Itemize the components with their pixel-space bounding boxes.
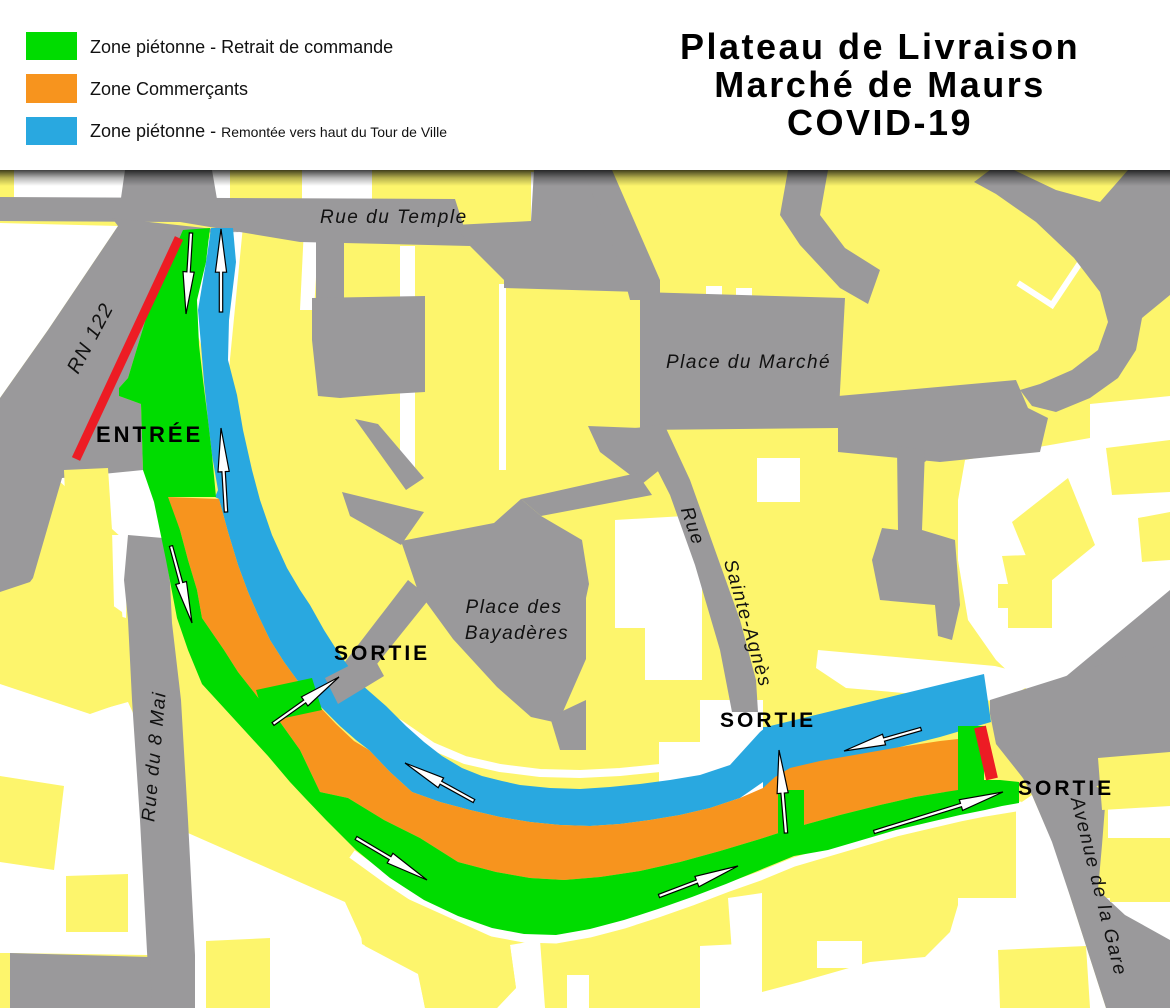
svg-text:Place des: Place des [466, 597, 563, 618]
svg-text:Rue du Temple: Rue du Temple [320, 207, 468, 228]
svg-text:SORTIE: SORTIE [334, 642, 430, 665]
svg-text:ENTRÉE: ENTRÉE [96, 422, 203, 447]
svg-text:SORTIE: SORTIE [720, 709, 816, 732]
svg-text:SORTIE: SORTIE [1018, 777, 1114, 800]
svg-text:Place du Marché: Place du Marché [666, 352, 831, 373]
svg-text:Bayadères: Bayadères [465, 623, 569, 644]
